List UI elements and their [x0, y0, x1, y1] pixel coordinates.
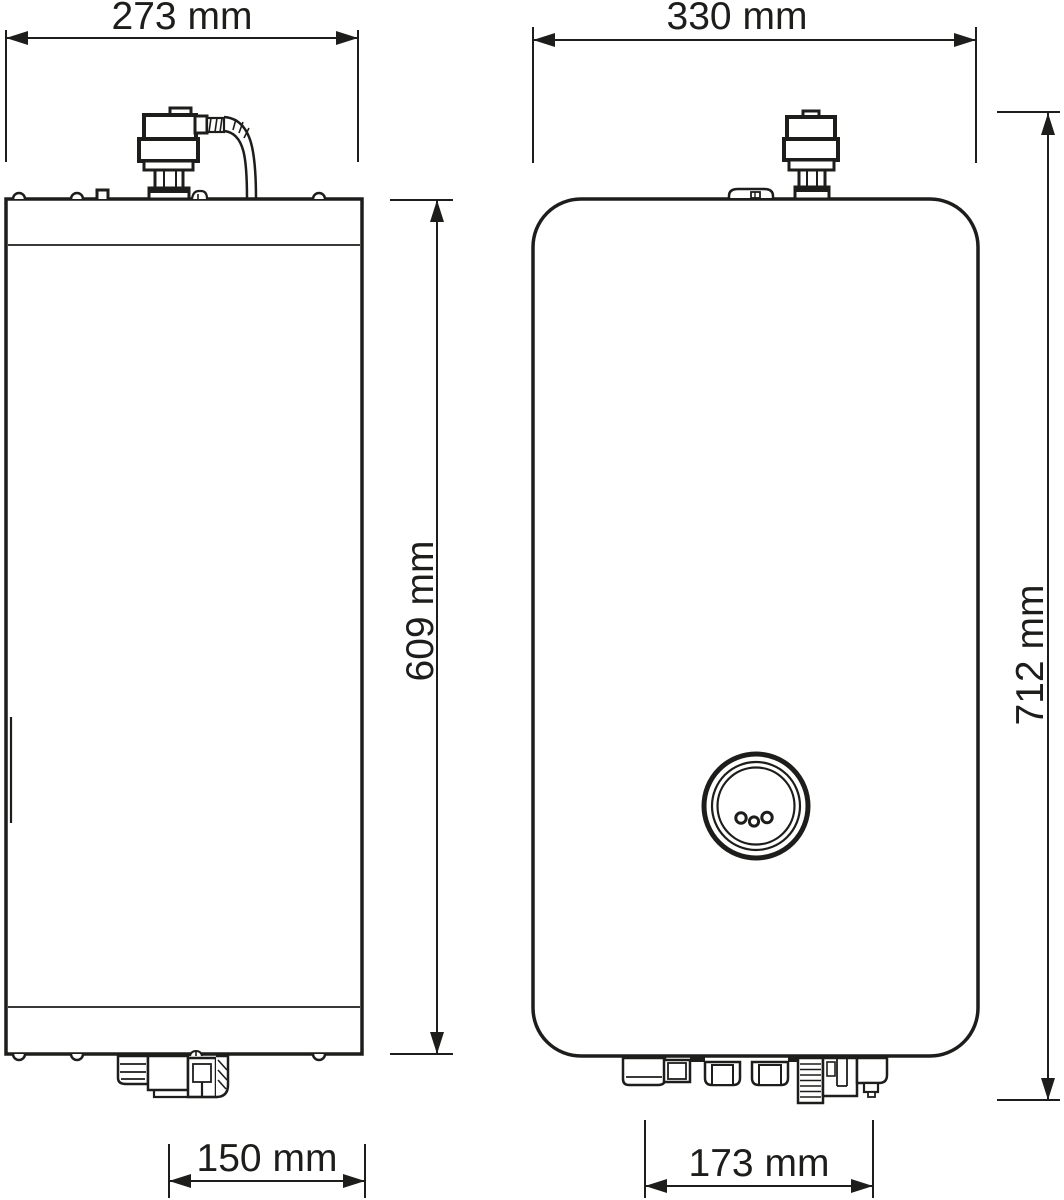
end-fitting	[857, 1058, 887, 1083]
round-cap	[704, 754, 808, 858]
dimension-body-height: 609 mm	[390, 200, 453, 1054]
valve-base-band	[795, 187, 829, 192]
connection-bracket	[216, 1056, 228, 1097]
side-valve-actuator	[139, 108, 256, 199]
dimension-label: 330 mm	[667, 0, 808, 38]
front-valve-actuator	[784, 111, 838, 199]
drawing-canvas: 273 mm 330 mm 609 mm 712 mm 150 mm	[0, 0, 1064, 1200]
cap-outer-ring	[704, 754, 808, 858]
technical-dimension-drawing: 273 mm 330 mm 609 mm 712 mm 150 mm	[0, 0, 1064, 1200]
connection-box	[148, 1056, 188, 1090]
dimension-label: 273 mm	[112, 0, 253, 38]
end-fitting-tip	[868, 1092, 875, 1097]
front-view	[533, 111, 978, 1103]
arrowhead-right-icon	[336, 31, 358, 45]
arrowhead-down-icon	[430, 1032, 444, 1054]
dimension-label: 712 mm	[1009, 585, 1052, 726]
side-view	[6, 108, 362, 1097]
dimension-front-bottom-width: 173 mm	[645, 1120, 873, 1198]
cable-connector	[195, 116, 207, 133]
dimension-label: 609 mm	[399, 541, 442, 682]
valve-mid-body	[139, 139, 198, 161]
valve-neck	[799, 170, 825, 187]
cable-inner	[224, 131, 247, 199]
bracket-tab-icon	[97, 190, 108, 199]
end-fitting-nub	[864, 1083, 878, 1092]
union-nut-inner	[712, 1065, 733, 1085]
valve-neck	[155, 170, 183, 188]
arrowhead-left-icon	[6, 31, 28, 45]
mount-lug-icon	[313, 193, 325, 199]
union-nut-inner	[759, 1065, 781, 1085]
front-top-fitting	[729, 189, 773, 198]
extension-lines	[533, 27, 976, 163]
dimension-front-width: 330 mm	[533, 0, 976, 163]
valve-mid-body	[784, 139, 838, 160]
valve-upper-body	[144, 115, 196, 139]
dimension-total-height: 712 mm	[997, 112, 1060, 1100]
arrowhead-up-icon	[1041, 113, 1055, 135]
arrowhead-right-icon	[954, 33, 976, 47]
cable-entry-box	[823, 1058, 857, 1096]
thread-ribs	[800, 1064, 821, 1097]
foot-lug-icon	[313, 1054, 325, 1060]
small-tab-icon	[192, 191, 207, 199]
arrowhead-down-icon	[1041, 1078, 1055, 1100]
valve-upper-body	[787, 117, 835, 139]
front-body-outline	[533, 199, 978, 1056]
side-bottom-connection	[118, 1051, 228, 1097]
arrowhead-left-icon	[645, 1179, 667, 1193]
foot-lug-icon	[71, 1054, 83, 1060]
arrowhead-right-icon	[343, 1174, 365, 1188]
arrowhead-left-icon	[169, 1174, 191, 1188]
arrowhead-up-icon	[430, 200, 444, 222]
pipe-fitting	[623, 1058, 665, 1085]
arrowhead-left-icon	[533, 33, 555, 47]
front-bottom-connections	[623, 1057, 887, 1103]
mount-lug-icon	[71, 193, 83, 199]
arrowhead-right-icon	[851, 1179, 873, 1193]
spacer-tab	[690, 1057, 705, 1062]
side-body-outline	[6, 199, 362, 1054]
foot-lug-icon	[13, 1054, 25, 1060]
dimension-label: 150 mm	[197, 1137, 338, 1180]
mount-lug-icon	[13, 193, 25, 199]
dimension-side-bottom-width: 150 mm	[169, 1137, 365, 1198]
dimension-label: 173 mm	[689, 1142, 830, 1185]
valve-base-band	[149, 188, 189, 193]
